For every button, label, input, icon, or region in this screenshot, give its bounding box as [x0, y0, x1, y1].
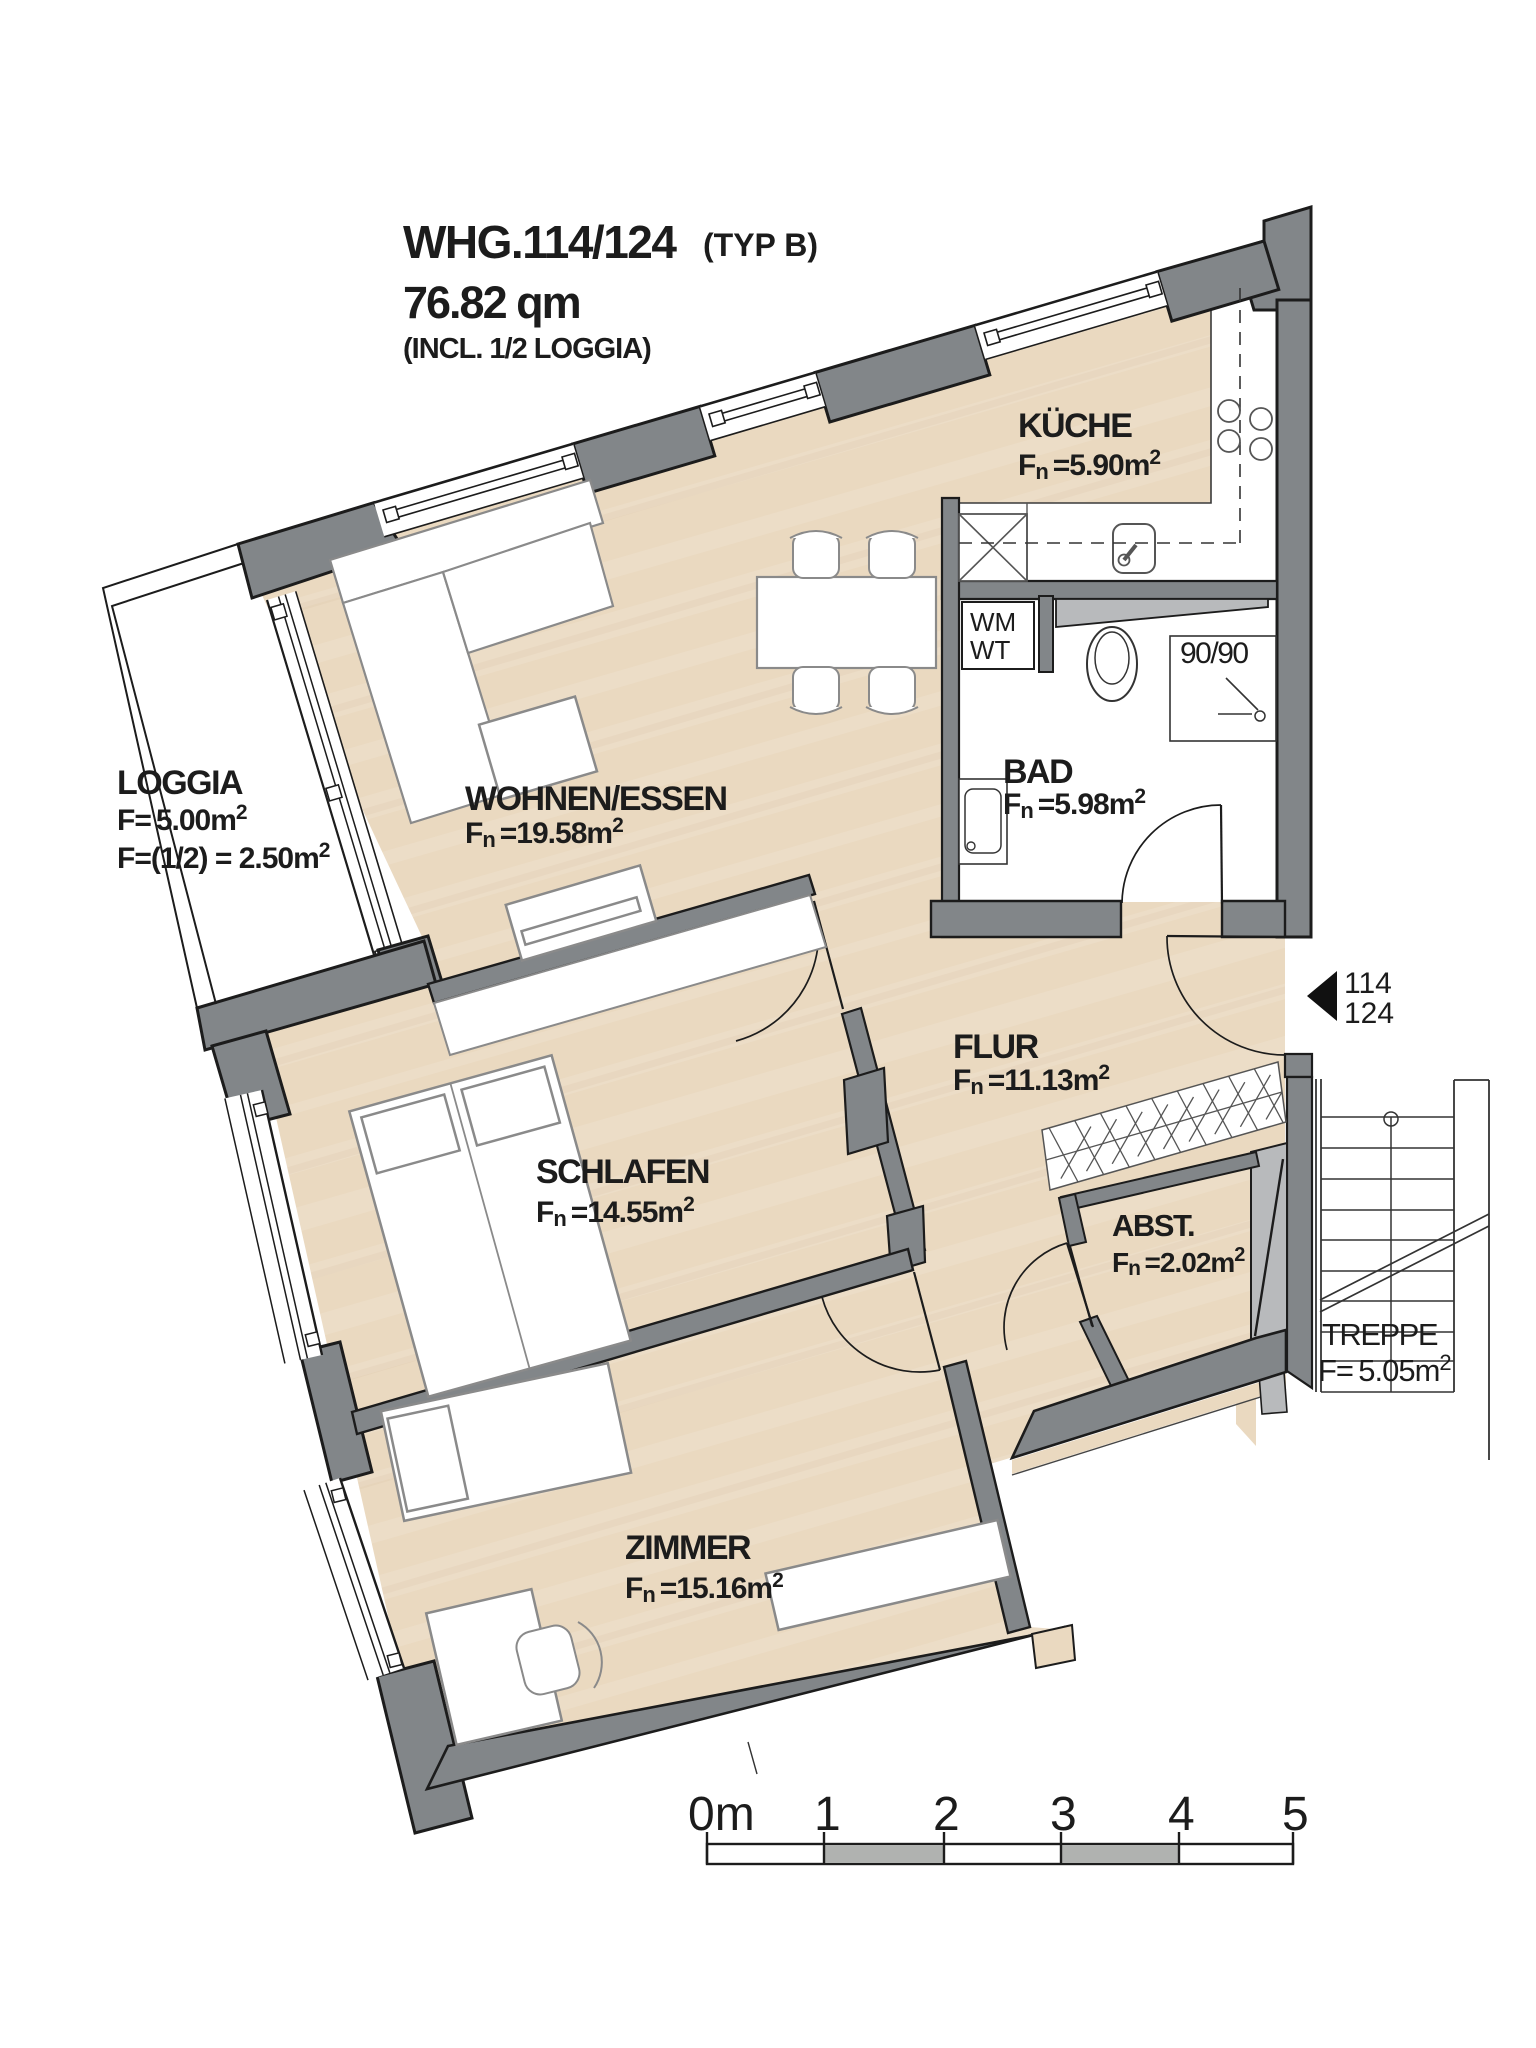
svg-text:KÜCHE: KÜCHE — [1018, 407, 1132, 445]
svg-text:(TYP B): (TYP B) — [703, 227, 818, 263]
svg-text:114: 114 — [1344, 967, 1392, 1000]
svg-text:2: 2 — [933, 1788, 960, 1841]
svg-text:5: 5 — [1282, 1788, 1309, 1841]
svg-text:WT: WT — [970, 635, 1011, 665]
svg-text:124: 124 — [1344, 997, 1394, 1030]
svg-text:90/90: 90/90 — [1180, 637, 1248, 670]
svg-text:F= 5.00m2: F= 5.00m2 — [117, 801, 247, 837]
svg-text:SCHLAFEN: SCHLAFEN — [536, 1153, 709, 1191]
svg-text:ABST.: ABST. — [1112, 1208, 1194, 1243]
svg-text:3: 3 — [1050, 1788, 1077, 1841]
svg-text:LOGGIA: LOGGIA — [117, 764, 243, 802]
svg-text:(INCL. 1/2 LOGGIA): (INCL. 1/2 LOGGIA) — [403, 333, 651, 365]
svg-text:TREPPE: TREPPE — [1322, 1317, 1438, 1352]
svg-text:4: 4 — [1168, 1788, 1195, 1841]
svg-text:F= 5.05m2: F= 5.05m2 — [1318, 1350, 1451, 1388]
svg-text:WOHNEN/ESSEN: WOHNEN/ESSEN — [465, 780, 727, 818]
svg-text:FLUR: FLUR — [953, 1028, 1039, 1066]
svg-text:0m: 0m — [688, 1788, 755, 1841]
svg-text:WM: WM — [970, 607, 1016, 637]
svg-text:F=(1/2) = 2.50m2: F=(1/2) = 2.50m2 — [117, 839, 330, 875]
svg-text:ZIMMER: ZIMMER — [625, 1529, 751, 1567]
svg-text:1: 1 — [814, 1788, 841, 1841]
svg-text:76.82 qm: 76.82 qm — [403, 277, 580, 328]
svg-text:BAD: BAD — [1003, 753, 1073, 791]
svg-text:WHG.114/124: WHG.114/124 — [403, 216, 677, 268]
